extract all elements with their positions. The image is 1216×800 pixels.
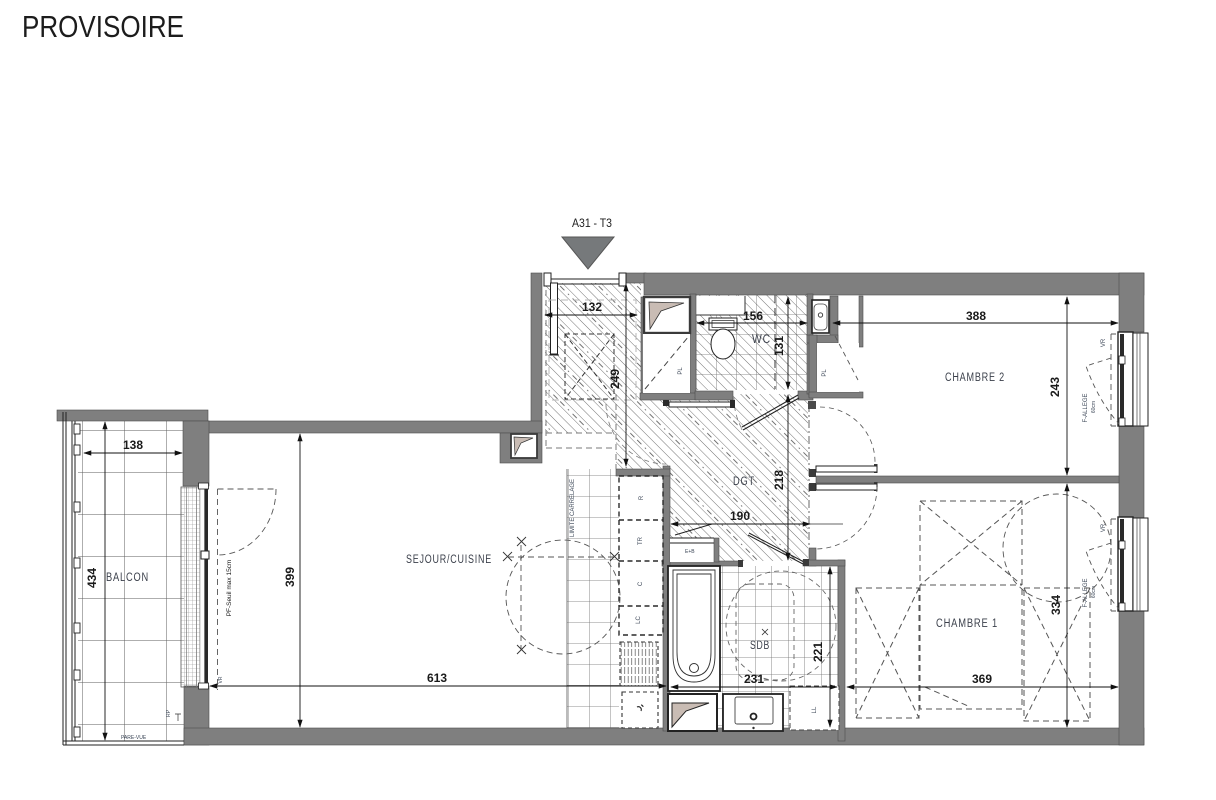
svg-text:PROVISOIRE: PROVISOIRE bbox=[22, 10, 184, 44]
svg-text:243: 243 bbox=[1048, 377, 1062, 397]
svg-text:SDB: SDB bbox=[750, 640, 770, 652]
svg-text:F-ALLEGE: F-ALLEGE bbox=[1083, 393, 1089, 422]
svg-text:221: 221 bbox=[811, 642, 825, 662]
svg-text:388: 388 bbox=[966, 309, 986, 323]
svg-text:A31 - T3: A31 - T3 bbox=[572, 218, 612, 230]
svg-text:CHAMBRE 2: CHAMBRE 2 bbox=[945, 372, 1005, 384]
svg-text:BALCON: BALCON bbox=[106, 572, 149, 584]
svg-text:613: 613 bbox=[427, 671, 447, 685]
svg-text:R: R bbox=[639, 495, 645, 500]
svg-text:434: 434 bbox=[85, 568, 99, 588]
svg-text:399: 399 bbox=[283, 567, 297, 587]
svg-text:C: C bbox=[638, 581, 644, 586]
svg-text:VR: VR bbox=[1101, 338, 1107, 347]
svg-text:DGT: DGT bbox=[733, 476, 755, 488]
svg-text:369: 369 bbox=[972, 672, 992, 686]
svg-text:190: 190 bbox=[730, 509, 750, 523]
svg-text:PL: PL bbox=[822, 369, 828, 377]
svg-text:PF-Seuil max 15cm: PF-Seuil max 15cm bbox=[226, 560, 233, 617]
svg-text:E+B: E+B bbox=[685, 549, 695, 555]
svg-text:RP: RP bbox=[166, 709, 172, 717]
svg-text:CHAMBRE 1: CHAMBRE 1 bbox=[936, 618, 998, 630]
svg-text:LIMITE CARRELAGE: LIMITE CARRELAGE bbox=[570, 479, 576, 537]
svg-text:60cm: 60cm bbox=[1091, 401, 1097, 413]
svg-text:LC: LC bbox=[636, 615, 642, 623]
svg-text:132: 132 bbox=[582, 300, 602, 314]
svg-text:138: 138 bbox=[123, 438, 143, 452]
svg-text:231: 231 bbox=[744, 672, 764, 686]
svg-text:SEJOUR/CUISINE: SEJOUR/CUISINE bbox=[406, 554, 492, 566]
svg-text:PARE-VUE: PARE-VUE bbox=[121, 735, 147, 741]
svg-text:WC: WC bbox=[752, 334, 771, 346]
svg-text:131: 131 bbox=[772, 336, 786, 356]
svg-text:PL: PL bbox=[678, 367, 684, 375]
svg-text:LL: LL bbox=[812, 706, 818, 713]
svg-text:TR: TR bbox=[638, 536, 644, 545]
svg-text:F-ALLEGE: F-ALLEGE bbox=[1083, 578, 1089, 607]
svg-text:156: 156 bbox=[743, 309, 763, 323]
svg-text:334: 334 bbox=[1049, 595, 1063, 615]
svg-text:VR: VR bbox=[218, 676, 224, 683]
svg-text:218: 218 bbox=[772, 470, 786, 490]
svg-text:249: 249 bbox=[608, 369, 622, 389]
